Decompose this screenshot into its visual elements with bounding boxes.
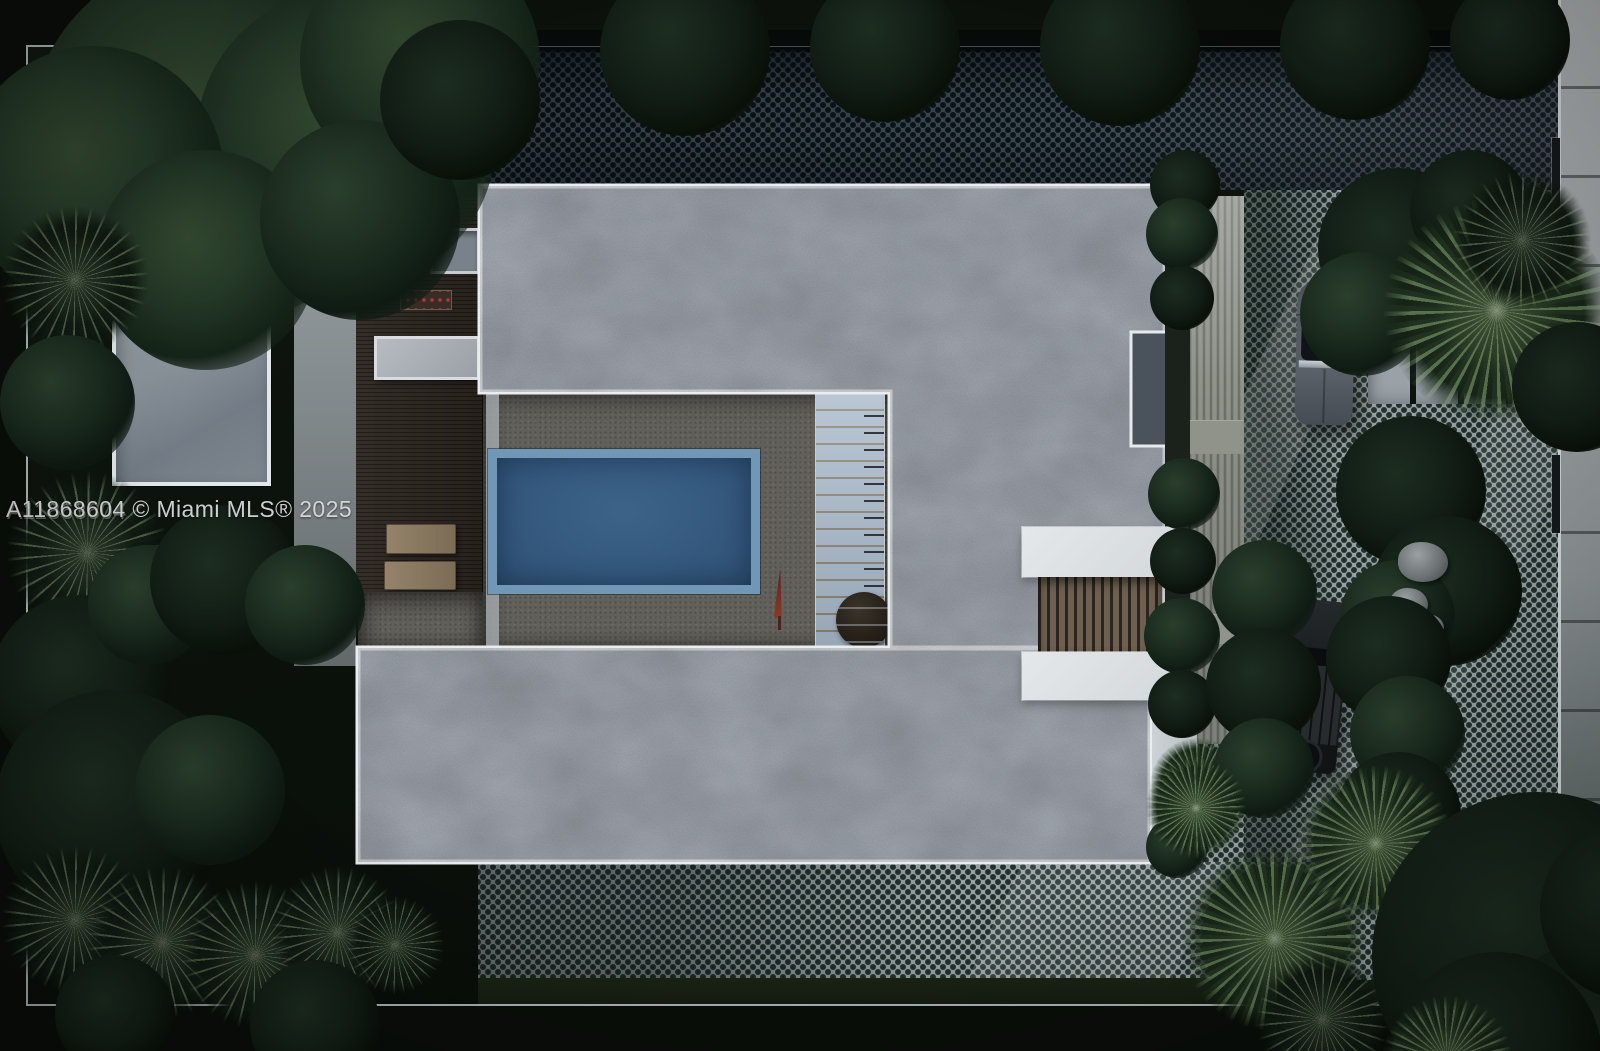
photo-vignette <box>0 0 1600 1051</box>
aerial-site-photo: A11863604 A11868604 © Miami MLS® 2025 <box>0 0 1600 1051</box>
